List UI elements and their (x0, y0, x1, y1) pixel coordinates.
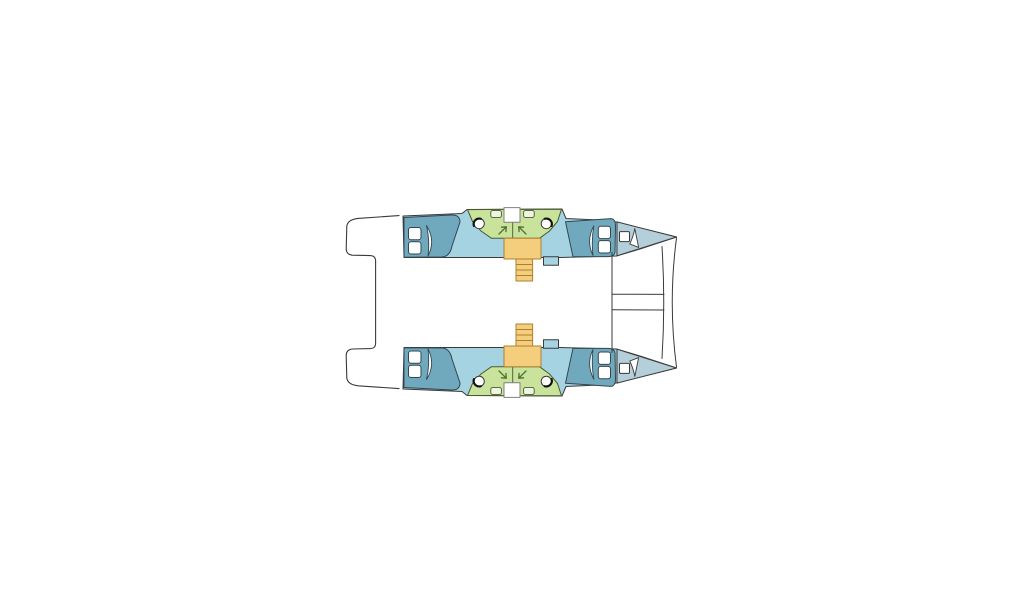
forward-beam-inner-arc (662, 247, 664, 359)
vanity-fixture-right (524, 211, 535, 218)
aft-platform-outline (346, 216, 399, 389)
forward-berth-pillow-1 (598, 226, 610, 238)
aft-berth-pillow-2 (409, 242, 422, 254)
starboard-hull-mirrored (403, 324, 677, 397)
port-hull (403, 208, 677, 281)
forward-beam-outer-arc (672, 238, 676, 367)
catamaran-floorplan-svg (0, 0, 1024, 600)
aft-berth-pillow-1 (409, 228, 422, 240)
vanity-fixture-left (491, 211, 502, 218)
bow-hatch (620, 232, 630, 242)
stair-landing (504, 238, 541, 259)
saloon-door (504, 208, 520, 223)
forward-crossbeam-lines (612, 238, 677, 367)
hull-step-tab (544, 257, 559, 265)
forward-berth-pillow-2 (598, 241, 610, 253)
floorplan-canvas (0, 0, 1024, 600)
